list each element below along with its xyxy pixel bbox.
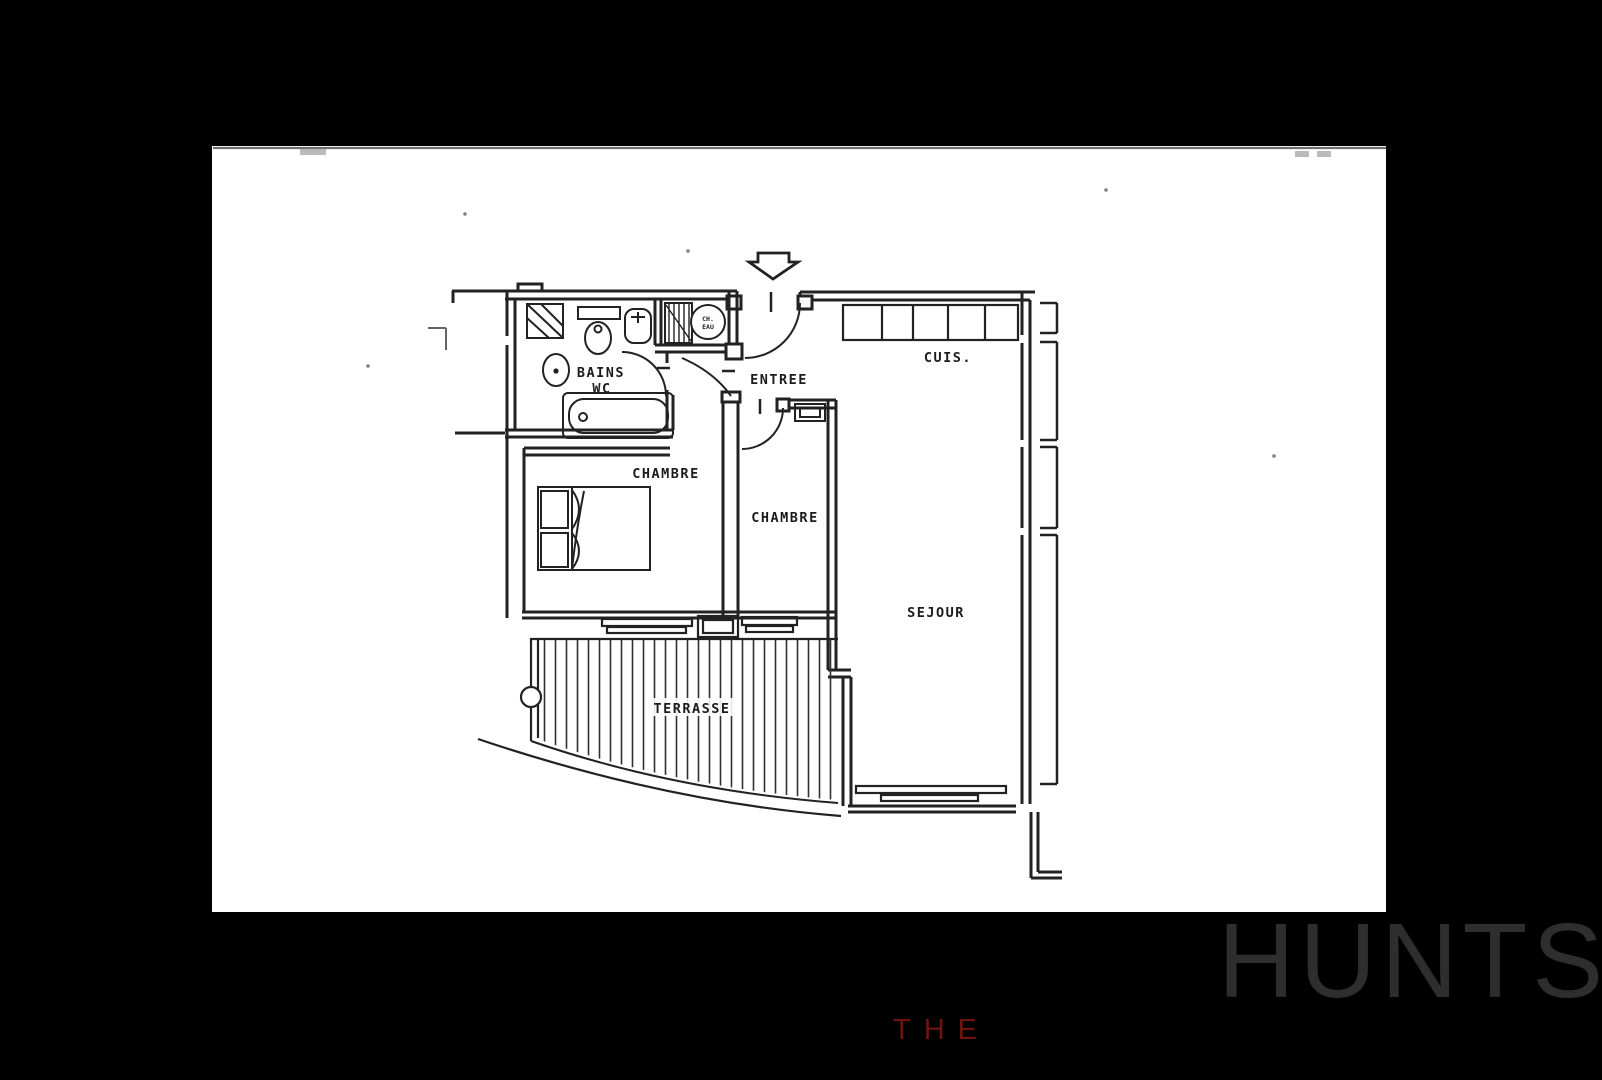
label-cuisine: CUIS. — [924, 350, 972, 366]
label-chambre-2: CHAMBRE — [751, 510, 818, 526]
label-chambre-1: CHAMBRE — [632, 466, 699, 482]
label-sejour: SEJOUR — [907, 605, 965, 621]
label-bains: BAINS — [577, 365, 625, 381]
label-wc: WC — [592, 381, 611, 397]
label-chauffe-eau-1: CH. — [702, 315, 714, 323]
floorplan-svg: BAINS WC CH. EAU ENTREE CUIS. CHAMBRE CH… — [0, 0, 1602, 1080]
label-chauffe-eau-2: EAU — [702, 323, 714, 331]
viewer-background: THE HUNTS — [0, 0, 1602, 1080]
label-terrasse: TERRASSE — [653, 701, 730, 717]
label-entree: ENTREE — [750, 372, 808, 388]
terrace-column — [521, 687, 541, 707]
kitchen-counter — [843, 305, 1018, 340]
